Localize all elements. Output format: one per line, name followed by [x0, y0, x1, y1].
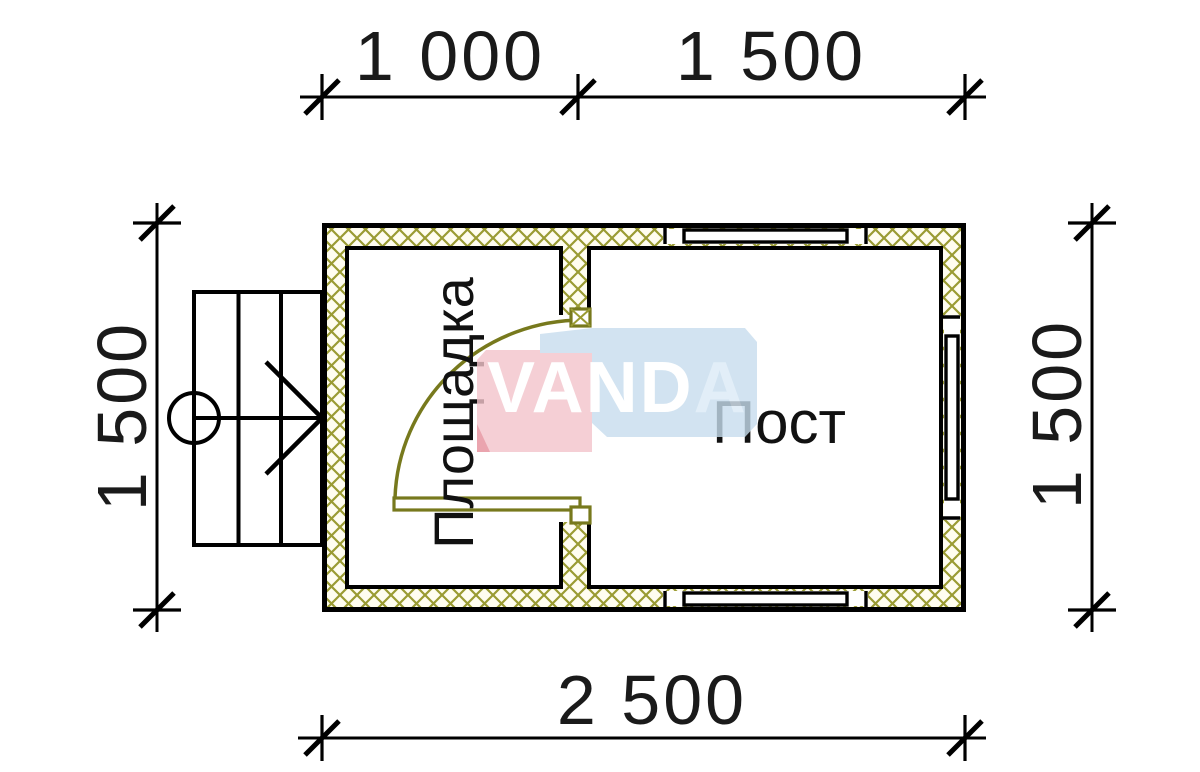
- floor-plan-svg: 1 000 1 500 2 500 1 500: [0, 0, 1200, 772]
- dimension-bottom-chain: 2 500: [298, 661, 986, 761]
- entry-steps: [169, 292, 325, 545]
- dim-text-left: 1 500: [83, 321, 161, 511]
- left-room-label: Площадка: [422, 276, 485, 548]
- floor-plan-page: 1 000 1 500 2 500 1 500: [0, 0, 1200, 772]
- brand-suffix: A: [694, 348, 748, 428]
- dim-text-bottom: 2 500: [557, 661, 747, 739]
- dimension-right-chain: 1 500: [1018, 203, 1116, 632]
- dimension-left-chain: 1 500: [83, 203, 181, 632]
- window-right: [943, 315, 960, 520]
- dim-text-right: 1 500: [1018, 319, 1096, 509]
- window-bottom: [663, 591, 868, 607]
- brand-prefix: VAND: [487, 348, 694, 428]
- watermark-brand-text: VANDA: [487, 348, 748, 428]
- dimension-top-chain: 1 000 1 500: [300, 17, 986, 120]
- dim-text-top-left: 1 000: [355, 17, 545, 95]
- window-top: [663, 228, 868, 244]
- door-jamb-bottom: [571, 507, 590, 523]
- dim-text-top-right: 1 500: [676, 17, 866, 95]
